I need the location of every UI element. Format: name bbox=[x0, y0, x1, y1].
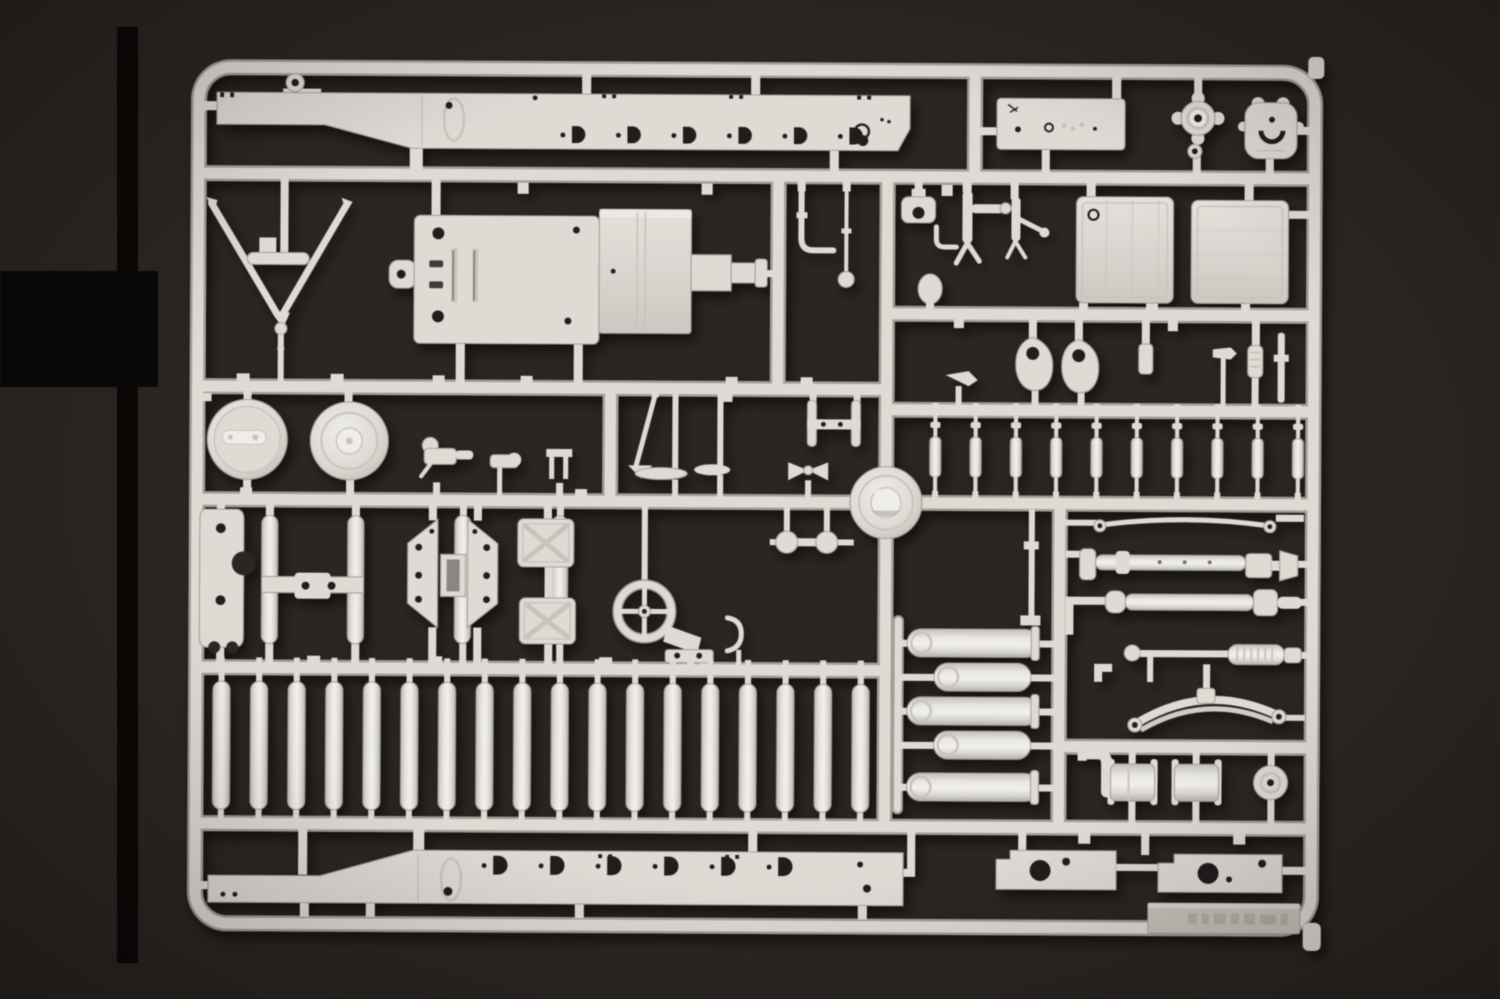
fuel-tank-a bbox=[1076, 178, 1174, 316]
egg-knob bbox=[918, 274, 942, 304]
product-photo: Overhead product photo of an injection-m… bbox=[0, 0, 1500, 999]
maker-tag bbox=[1148, 903, 1300, 934]
central-hub bbox=[850, 466, 922, 538]
crop-bar-vertical bbox=[117, 27, 138, 963]
maker-tag-embossing bbox=[1188, 913, 1288, 925]
muffler-stack bbox=[897, 626, 1063, 805]
crop-bar-horizontal bbox=[0, 271, 158, 387]
sprue-photo-svg bbox=[0, 0, 1500, 999]
